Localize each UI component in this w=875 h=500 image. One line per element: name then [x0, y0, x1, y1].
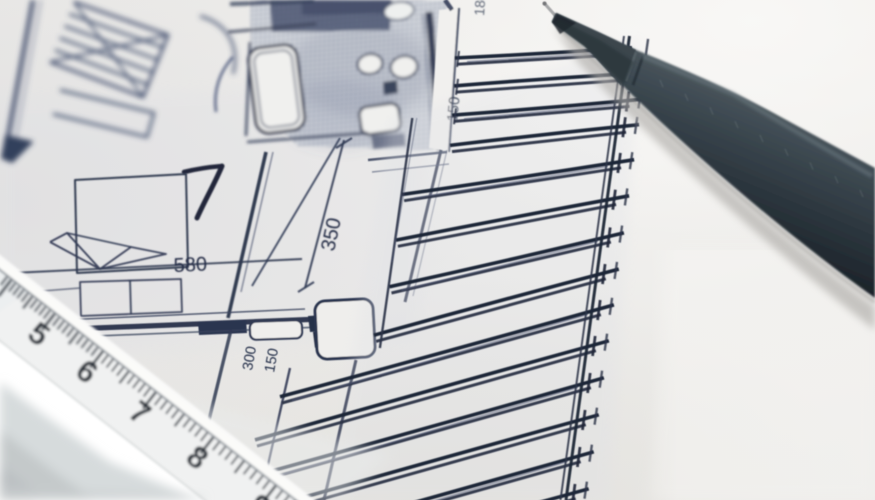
svg-text:180: 180 [471, 0, 489, 16]
svg-text:580: 580 [173, 253, 207, 277]
